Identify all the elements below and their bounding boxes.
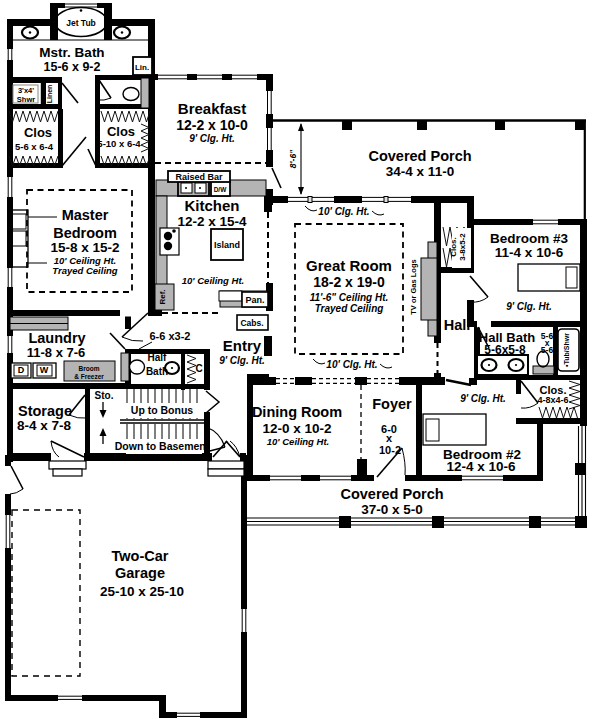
svg-text:9' Clg. Ht.: 9' Clg. Ht. bbox=[219, 355, 265, 366]
svg-text:10' Clg. Ht.: 10' Clg. Ht. bbox=[318, 206, 369, 217]
svg-text:Covered Porch: Covered Porch bbox=[340, 486, 443, 502]
svg-text:Cabs.: Cabs. bbox=[240, 318, 263, 328]
svg-text:x: x bbox=[386, 432, 393, 444]
svg-text:Island: Island bbox=[214, 240, 240, 250]
svg-text:Shwr: Shwr bbox=[17, 95, 35, 104]
svg-text:Half: Half bbox=[148, 352, 168, 363]
svg-text:Clos.: Clos. bbox=[449, 237, 458, 257]
svg-text:Dining Room: Dining Room bbox=[252, 404, 342, 420]
svg-text:12-4 x 10-6: 12-4 x 10-6 bbox=[446, 459, 516, 474]
svg-text:TV or Gas Logs: TV or Gas Logs bbox=[409, 259, 418, 314]
svg-text:3-8x5-2: 3-8x5-2 bbox=[458, 233, 467, 261]
svg-text:Hall: Hall bbox=[444, 317, 471, 333]
svg-text:8-4 x 7-8: 8-4 x 7-8 bbox=[17, 418, 72, 433]
svg-text:Broom: Broom bbox=[79, 365, 100, 372]
svg-text:25-10 x 25-10: 25-10 x 25-10 bbox=[100, 584, 184, 599]
svg-text:15-8 x 15-2: 15-8 x 15-2 bbox=[50, 240, 119, 255]
svg-text:12-0 x 10-2: 12-0 x 10-2 bbox=[262, 421, 331, 436]
svg-text:Trayed Ceiling: Trayed Ceiling bbox=[315, 303, 384, 314]
svg-text:9' Clg. Ht.: 9' Clg. Ht. bbox=[460, 393, 506, 404]
svg-text:34-4 x 11-0: 34-4 x 11-0 bbox=[386, 164, 454, 179]
svg-text:Two-Car: Two-Car bbox=[112, 548, 169, 564]
svg-text:Pan.: Pan. bbox=[245, 295, 264, 305]
svg-text:18-2 x 19-0: 18-2 x 19-0 bbox=[313, 274, 385, 290]
svg-text:Linen: Linen bbox=[46, 85, 53, 104]
svg-text:Bedroom #3: Bedroom #3 bbox=[490, 231, 569, 246]
svg-text:•Tub/Shwr: •Tub/Shwr bbox=[563, 333, 570, 367]
svg-text:5-10 x 6-4: 5-10 x 6-4 bbox=[97, 138, 141, 149]
svg-text:Sto.: Sto. bbox=[95, 390, 114, 401]
svg-text:Bath: Bath bbox=[146, 366, 168, 377]
svg-text:Foyer: Foyer bbox=[372, 396, 412, 412]
svg-text:Lin.: Lin. bbox=[135, 63, 149, 72]
svg-text:Down to Basement: Down to Basement bbox=[115, 440, 210, 452]
svg-text:& Freezer: & Freezer bbox=[74, 373, 104, 380]
svg-text:Jet Tub: Jet Tub bbox=[66, 18, 96, 28]
svg-text:Great Room: Great Room bbox=[306, 257, 392, 274]
svg-text:8'-6": 8'-6" bbox=[288, 149, 298, 168]
svg-text:10' Ceiling Ht.: 10' Ceiling Ht. bbox=[267, 436, 329, 447]
svg-text:11-8 x 7-6: 11-8 x 7-6 bbox=[27, 345, 86, 360]
svg-text:Garage: Garage bbox=[115, 565, 165, 581]
svg-text:5-6 x 6-4: 5-6 x 6-4 bbox=[15, 141, 54, 152]
svg-text:Storage: Storage bbox=[18, 403, 72, 419]
svg-text:Mstr. Bath: Mstr. Bath bbox=[39, 45, 104, 60]
svg-text:Master: Master bbox=[62, 207, 109, 223]
svg-text:6-6 x3-2: 6-6 x3-2 bbox=[150, 330, 191, 342]
svg-text:Bedroom: Bedroom bbox=[53, 225, 117, 241]
svg-text:11-4 x 10-6: 11-4 x 10-6 bbox=[495, 245, 564, 260]
svg-text:Covered Porch: Covered Porch bbox=[368, 148, 471, 164]
svg-text:Entry: Entry bbox=[223, 337, 262, 354]
svg-text:D/W: D/W bbox=[214, 186, 228, 193]
svg-text:4-8x4-6: 4-8x4-6 bbox=[537, 395, 568, 405]
svg-text:Breakfast: Breakfast bbox=[178, 100, 246, 117]
svg-text:Laundry: Laundry bbox=[28, 330, 85, 346]
svg-text:Up to Bonus: Up to Bonus bbox=[131, 404, 194, 416]
svg-text:9' Clg. Ht.: 9' Clg. Ht. bbox=[189, 133, 235, 144]
svg-text:Kitchen: Kitchen bbox=[184, 197, 239, 214]
svg-text:12-2 x 10-0: 12-2 x 10-0 bbox=[176, 117, 248, 133]
svg-text:37-0 x 5-0: 37-0 x 5-0 bbox=[361, 502, 423, 517]
svg-text:Trayed Ceiling: Trayed Ceiling bbox=[52, 265, 117, 276]
svg-text:5-6x5-8: 5-6x5-8 bbox=[484, 343, 526, 357]
svg-text:C: C bbox=[195, 363, 202, 374]
svg-text:9' Clg. Ht.: 9' Clg. Ht. bbox=[506, 301, 552, 312]
svg-text:Raised Bar: Raised Bar bbox=[175, 172, 223, 182]
svg-text:Ref.: Ref. bbox=[158, 289, 167, 304]
svg-text:10' Ceiling Ht.: 10' Ceiling Ht. bbox=[182, 275, 244, 286]
svg-text:12-2 x 15-4: 12-2 x 15-4 bbox=[177, 214, 247, 229]
svg-text:W: W bbox=[40, 365, 49, 375]
svg-text:10' Clg. Ht.: 10' Clg. Ht. bbox=[326, 359, 377, 370]
svg-text:5-6: 5-6 bbox=[541, 345, 554, 355]
svg-text:Clos: Clos bbox=[24, 125, 52, 140]
svg-text:3'x4': 3'x4' bbox=[18, 86, 34, 95]
svg-text:Clos: Clos bbox=[107, 124, 135, 139]
svg-text:15-6 x 9-2: 15-6 x 9-2 bbox=[44, 60, 101, 74]
svg-text:10-2: 10-2 bbox=[379, 444, 401, 456]
svg-text:D: D bbox=[18, 365, 25, 375]
svg-text:11'-6" Ceiling Ht.: 11'-6" Ceiling Ht. bbox=[310, 292, 389, 303]
